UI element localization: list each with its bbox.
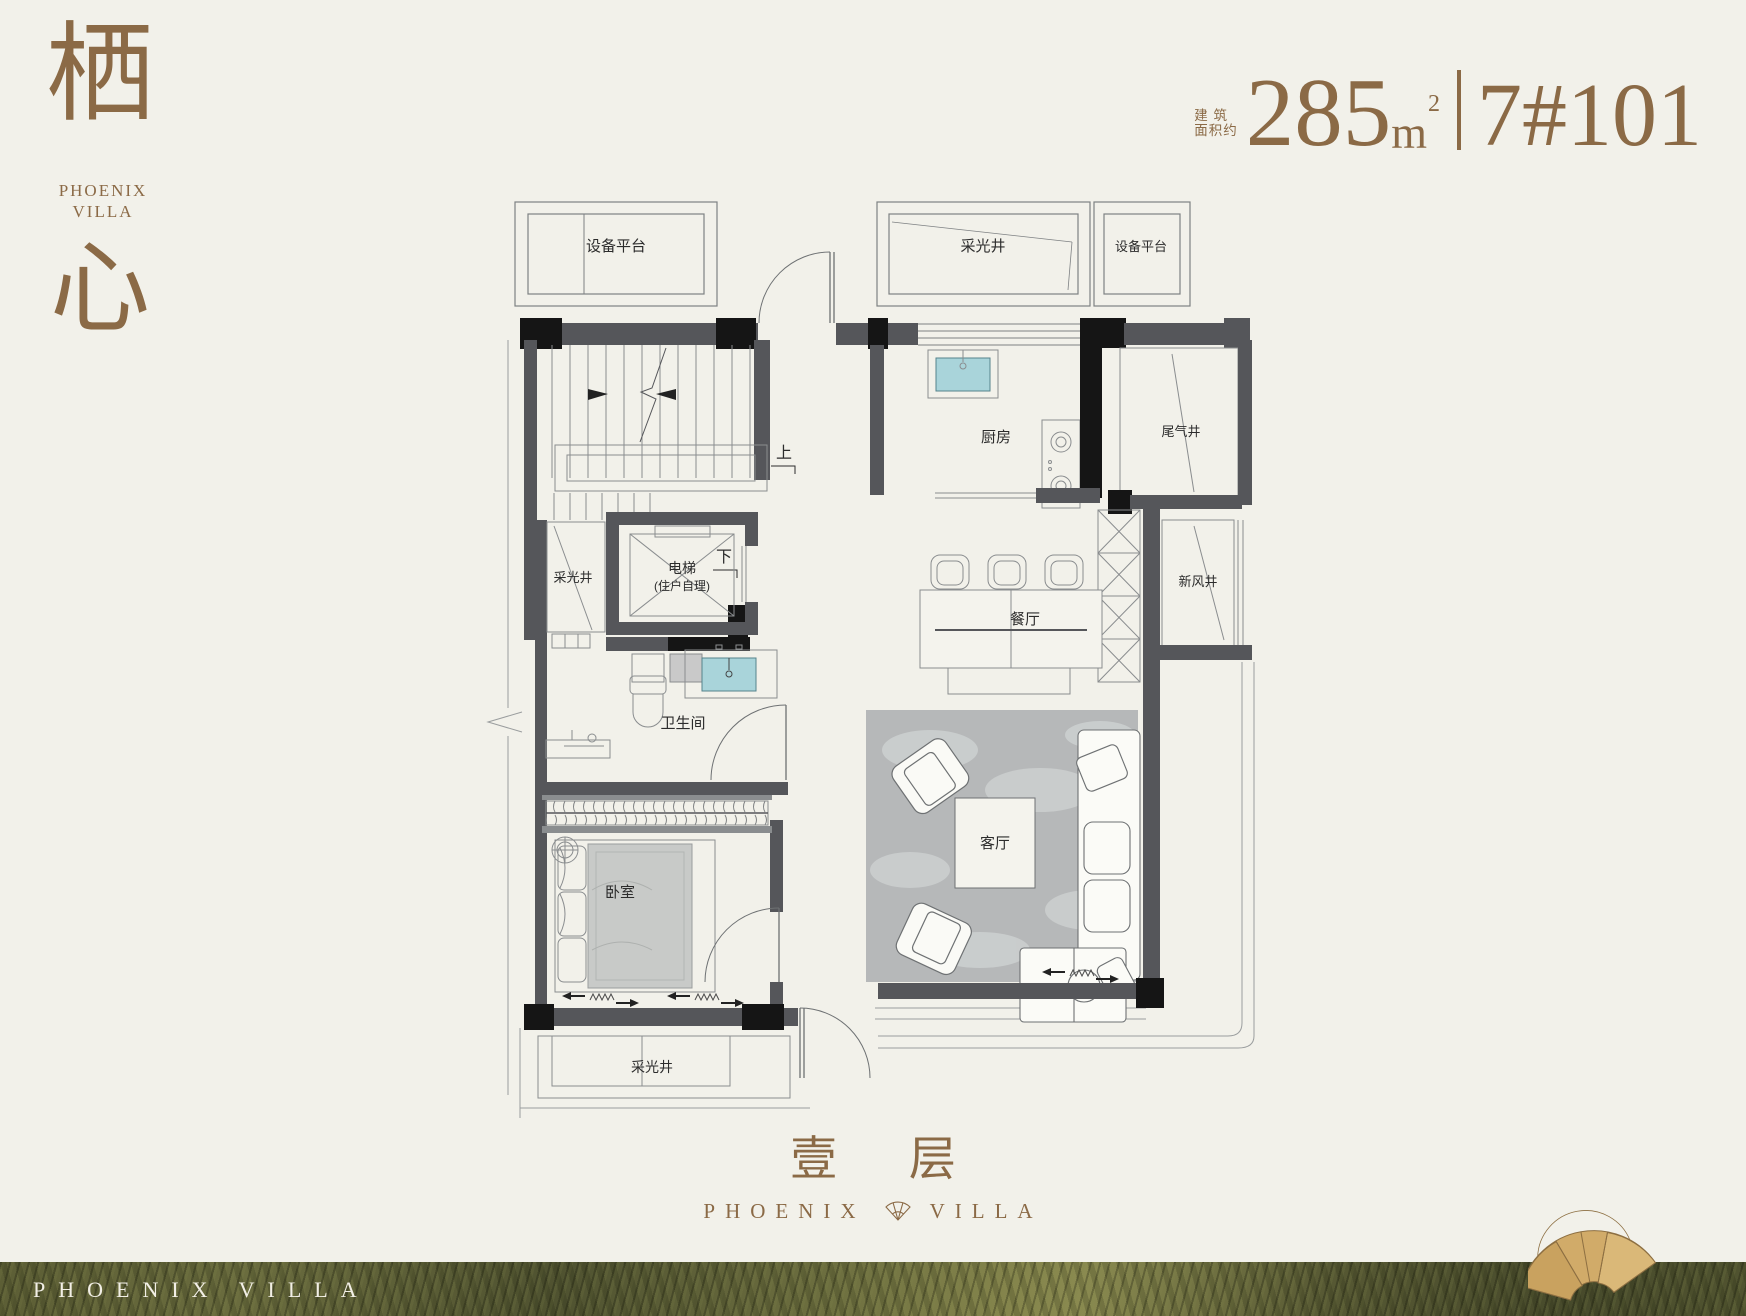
area-divider — [1457, 70, 1461, 150]
area-label-line2: 面积约 — [1194, 123, 1238, 138]
light-well-left — [547, 522, 605, 648]
label-light-well-left: 采光井 — [553, 570, 592, 585]
label-living: 客厅 — [980, 835, 1010, 852]
label-stair-up: 上 — [776, 444, 792, 462]
hall-entry-door — [784, 1008, 870, 1078]
label-stair-down: 下 — [716, 549, 732, 566]
bedroom — [552, 837, 779, 992]
area-exponent: 2 — [1428, 91, 1440, 118]
floorplan-drawing: 设备平台 采光井 设备平台 — [480, 190, 1290, 1120]
logo-hanzi-bottom: 心 — [50, 240, 150, 340]
floor-title: 壹 层 — [0, 1120, 1746, 1189]
gold-fan-icon — [1528, 1198, 1678, 1310]
label-dining: 餐厅 — [1010, 611, 1040, 628]
logo-brand: PHOENIX VILLA — [38, 180, 168, 223]
cabinet-column — [1098, 510, 1140, 682]
area-label: 建 筑 面积约 — [1194, 108, 1238, 138]
stair-down-mark — [713, 570, 737, 578]
staircase — [552, 345, 767, 520]
label-exhaust-shaft: 尾气井 — [1161, 424, 1200, 439]
logo-brand-line1: PHOENIX — [38, 180, 168, 201]
entry-door — [759, 252, 834, 323]
logo-hanzi-top: 栖 — [46, 22, 154, 130]
bottom-strip: PHOENIX VILLA — [0, 1262, 1746, 1316]
label-light-well-bottom: 采光井 — [631, 1059, 673, 1075]
living-room — [866, 710, 1140, 1022]
label-fresh-air-shaft: 新风井 — [1178, 574, 1217, 589]
label-equip-platform-right: 设备平台 — [1115, 239, 1167, 254]
label-light-well-top: 采光井 — [960, 238, 1005, 255]
living-right-wall — [1143, 508, 1160, 994]
logo-brand-line2: VILLA — [38, 201, 168, 222]
label-equip-platform-left: 设备平台 — [586, 238, 646, 255]
fan-icon — [880, 1198, 916, 1228]
footer-brand-right: VILLA — [930, 1199, 1043, 1223]
area-block: 建 筑 面积约 285m2 7#101 — [1194, 70, 1702, 170]
area-value: 285 — [1246, 74, 1392, 152]
floorplan-poster: 栖 PHOENIX VILLA 心 建 筑 面积约 285m2 7#101 — [0, 0, 1746, 1316]
footer-brand: PHOENIX VILLA — [0, 1198, 1746, 1228]
wardrobe — [542, 795, 772, 833]
strip-brand-text: PHOENIX VILLA — [33, 1262, 370, 1316]
label-elevator-line1: 电梯 — [668, 560, 696, 576]
label-elevator-line2: (住户自理) — [654, 578, 710, 593]
kitchen — [868, 318, 1102, 508]
label-bathroom: 卫生间 — [660, 715, 705, 732]
area-unit: m — [1391, 115, 1427, 152]
area-label-line1: 建 筑 — [1194, 108, 1238, 123]
stair-up-mark — [771, 466, 795, 474]
left-bottom-wall — [524, 992, 784, 1030]
footer-brand-left: PHOENIX — [703, 1199, 865, 1223]
equip-platform-right-box — [1094, 202, 1190, 306]
unit-number: 7#101 — [1477, 80, 1702, 152]
label-bedroom: 卧室 — [605, 884, 635, 901]
fresh-air-shaft — [1158, 520, 1252, 660]
label-kitchen: 厨房 — [981, 429, 1011, 446]
